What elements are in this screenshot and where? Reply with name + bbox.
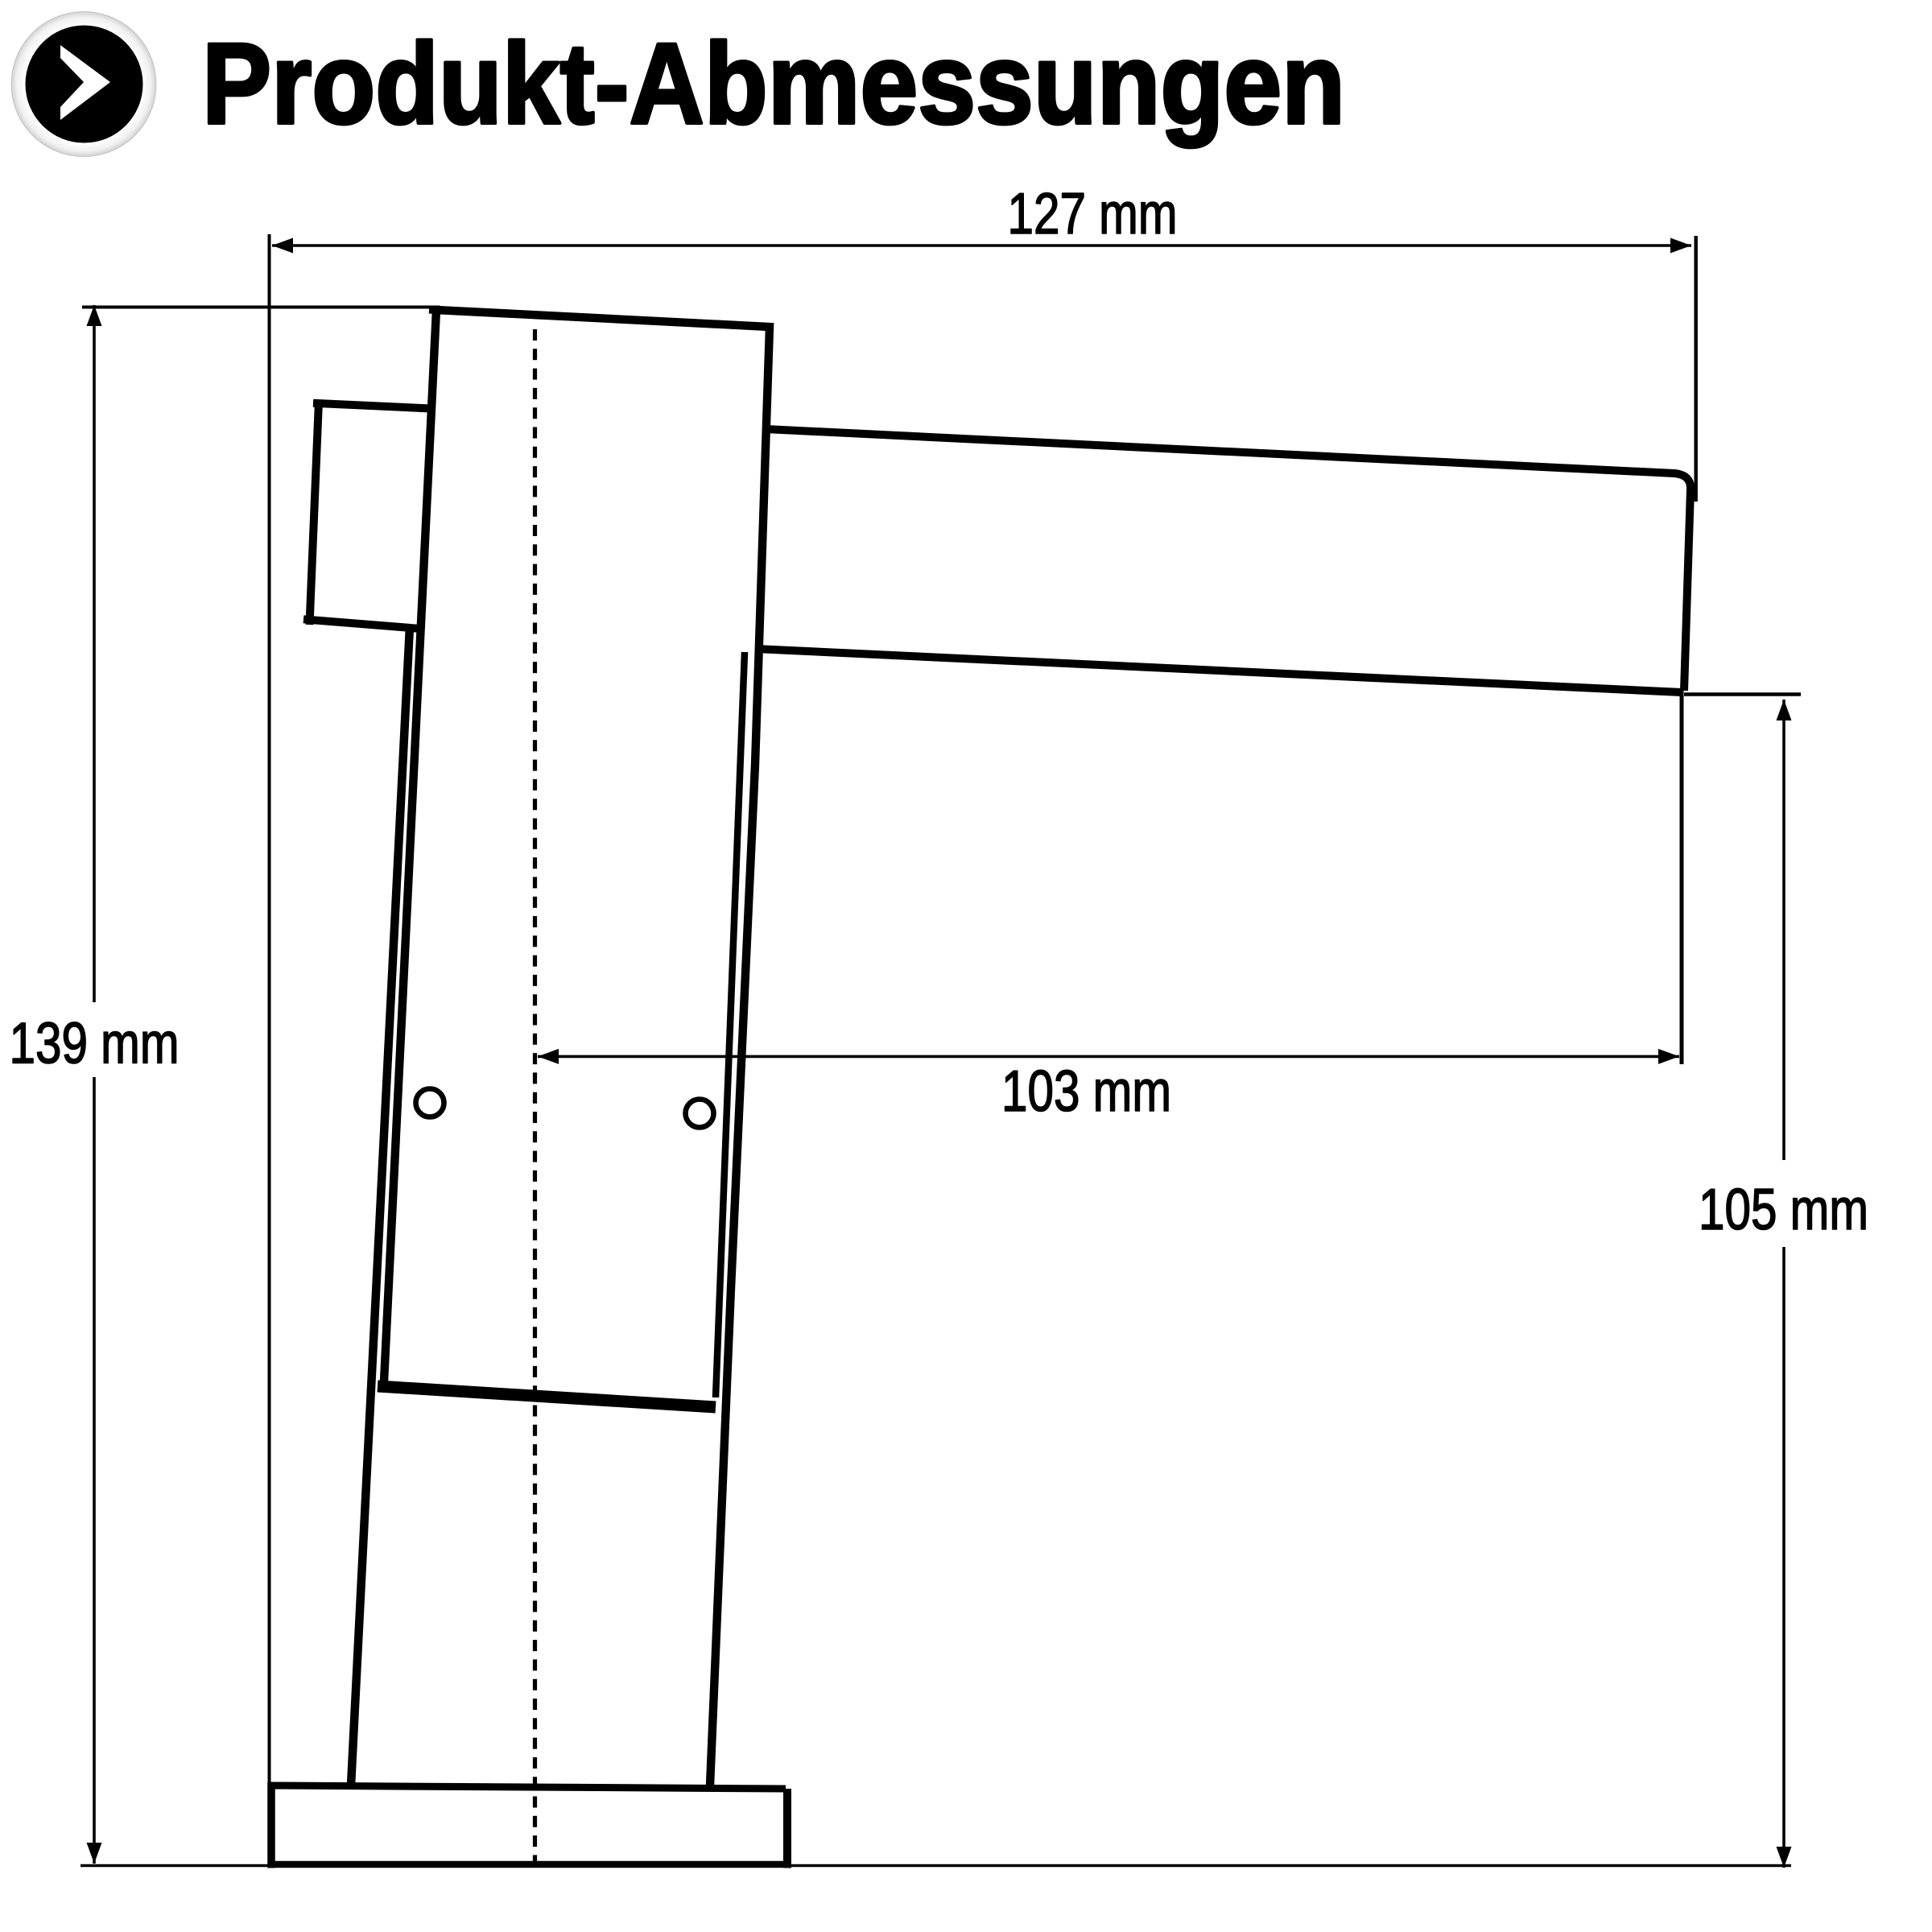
svg-text:Produkt-Abmessungen: Produkt-Abmessungen [202,20,1345,148]
svg-text:105 mm: 105 mm [1699,1178,1868,1242]
svg-text:139 mm: 139 mm [10,1012,180,1076]
svg-text:127 mm: 127 mm [1008,182,1178,246]
svg-text:103 mm: 103 mm [1001,1059,1171,1124]
